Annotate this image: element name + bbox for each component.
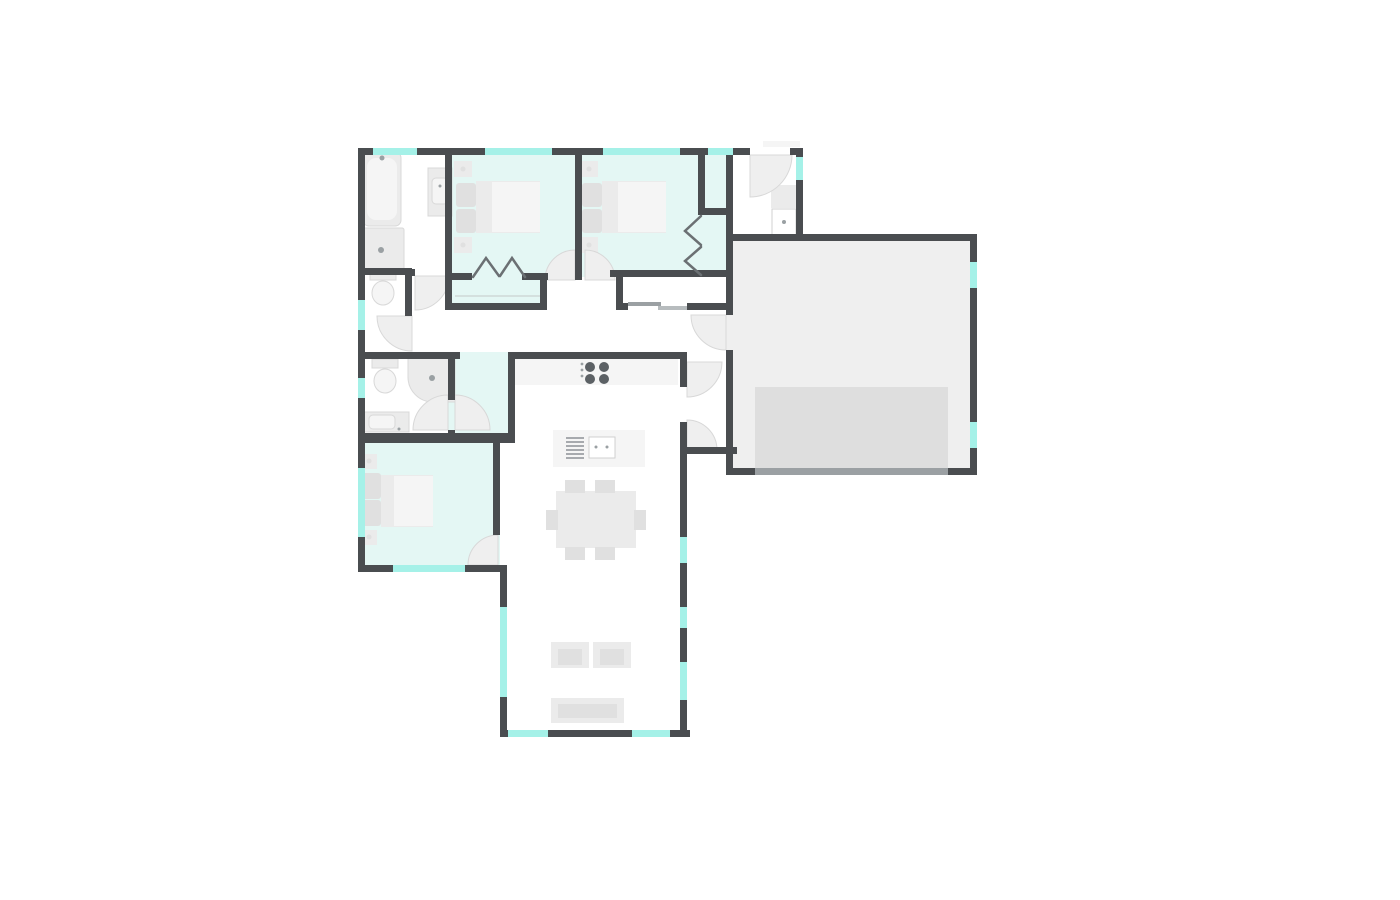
dining-chair (595, 547, 615, 560)
dining-chair (634, 510, 646, 530)
armchair-cushion (558, 649, 582, 665)
wall-segment (733, 234, 977, 241)
island-sink (589, 437, 615, 458)
bed-2-pillow (582, 183, 602, 207)
wall-segment (358, 352, 460, 359)
window (603, 148, 680, 155)
cooktop-burner (585, 362, 595, 372)
wall-segment (687, 303, 733, 310)
wall-segment (680, 352, 687, 387)
toilet-tank-2 (372, 359, 398, 368)
window (508, 730, 548, 737)
window (485, 148, 552, 155)
window (970, 262, 977, 288)
wall-segment (680, 628, 687, 662)
wall-segment (358, 268, 412, 275)
garage-roller-door (755, 468, 948, 475)
toilet-bowl-1 (372, 281, 394, 305)
wall-segment (358, 433, 515, 443)
window (970, 422, 977, 448)
cooktop-knob (581, 363, 584, 366)
wall-segment (726, 148, 733, 315)
kitchen-counter (513, 359, 678, 385)
window (680, 662, 687, 700)
bathtub-faucet (380, 156, 385, 161)
window (500, 607, 507, 697)
wall-segment (405, 269, 415, 276)
wall-segment (680, 447, 737, 454)
bed-1-pillow (456, 209, 476, 233)
island-sink-drain (606, 446, 609, 449)
wall-segment (493, 443, 500, 535)
entry-mat (763, 141, 800, 147)
window (632, 730, 670, 737)
nightstand-lamp (587, 243, 592, 248)
nightstand-lamp (367, 535, 372, 540)
wall-segment (575, 148, 582, 280)
sliding-closet-door (658, 306, 689, 310)
bed-2-pillow (582, 209, 602, 233)
entry-sink-drain (782, 220, 786, 224)
wall-segment (680, 563, 687, 607)
dining-chair (565, 480, 585, 493)
island-sink-drain (595, 446, 598, 449)
wall-segment (448, 352, 455, 400)
wall-segment (698, 148, 705, 212)
window (358, 378, 365, 398)
armchair-cushion (600, 649, 624, 665)
dining-chair (565, 547, 585, 560)
cooktop-burner (599, 374, 609, 384)
cooktop-burner (585, 374, 595, 384)
cooktop-burner (599, 362, 609, 372)
wall-segment (540, 273, 547, 310)
sliding-closet-door (628, 302, 661, 306)
wall-segment (510, 352, 687, 359)
window (796, 157, 803, 180)
bed-1-pillow (456, 183, 476, 207)
wall-segment (445, 148, 452, 310)
window (393, 565, 465, 572)
bed-3-duvet (394, 476, 433, 526)
tv-bench-top (558, 704, 617, 718)
toilet-bowl-2 (374, 369, 396, 393)
window (708, 148, 733, 155)
wall-segment (680, 700, 687, 737)
vanity-faucet-2 (398, 428, 401, 431)
wall-segment (616, 303, 628, 310)
bed-1-duvet (492, 182, 540, 232)
vanity-basin-2 (369, 415, 395, 429)
wall-segment (452, 273, 472, 280)
nightstand-lamp (461, 243, 466, 248)
bed-2-duvet (618, 182, 666, 232)
dining-chair (546, 510, 558, 530)
dining-table (556, 491, 636, 548)
wall-segment (680, 422, 687, 537)
shower-drain (378, 247, 384, 253)
nightstand-lamp (587, 167, 592, 172)
window (680, 537, 687, 563)
window (358, 300, 365, 330)
floor-plan-canvas (0, 0, 1400, 900)
window (358, 468, 365, 537)
cooktop-knob (581, 369, 584, 372)
floor-plan (0, 0, 1400, 900)
vanity-faucet-1 (439, 185, 442, 188)
car-pad (755, 387, 948, 468)
window (680, 607, 687, 628)
wall-segment (610, 270, 733, 277)
window (373, 148, 417, 155)
nightstand-lamp (367, 459, 372, 464)
bathtub-basin (367, 158, 397, 220)
cooktop-knob (581, 375, 584, 378)
wall-segment (508, 352, 515, 443)
nightstand-lamp (461, 167, 466, 172)
corner-shower-drain (429, 375, 435, 381)
dining-chair (595, 480, 615, 493)
wall-segment (726, 350, 733, 475)
wall-segment (445, 303, 547, 310)
